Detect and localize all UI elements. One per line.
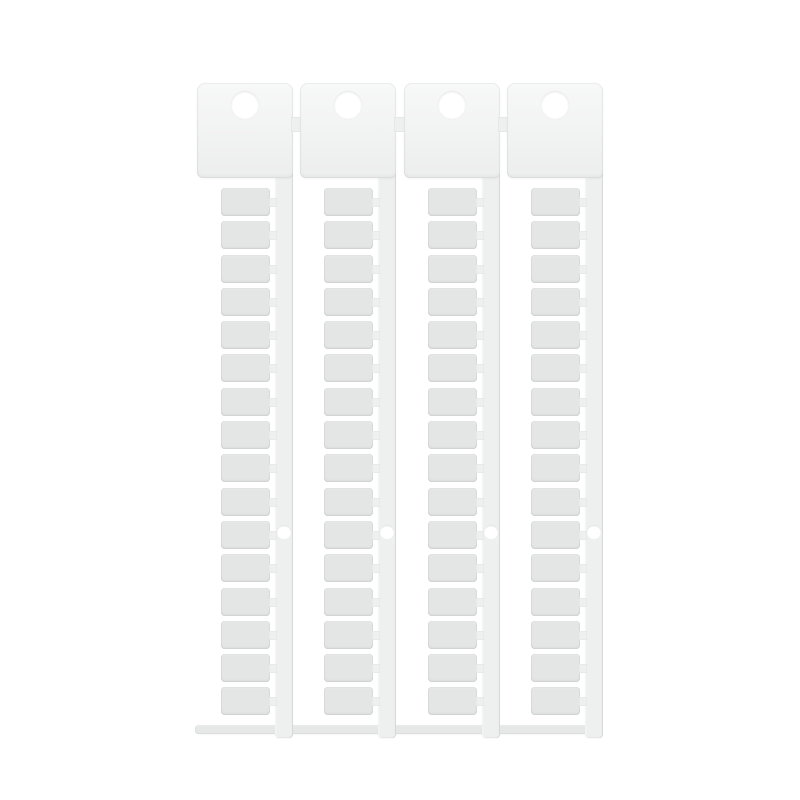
blank-marker-tag — [428, 687, 477, 715]
tag-connector-nub — [372, 697, 380, 706]
blank-marker-tag — [221, 621, 270, 649]
tag-connector-nub — [579, 531, 587, 540]
tag-row — [324, 288, 380, 316]
spine-hole — [277, 525, 291, 539]
tag-row — [531, 255, 587, 283]
tag-connector-nub — [476, 531, 484, 540]
tag-connector-nub — [269, 664, 277, 673]
marker-strip-2 — [300, 83, 396, 743]
tag-row — [221, 255, 277, 283]
blank-marker-tag — [428, 288, 477, 316]
blank-marker-tag — [531, 321, 580, 349]
tag-column — [221, 188, 277, 715]
tag-connector-nub — [372, 664, 380, 673]
tag-row — [428, 388, 484, 416]
tag-connector-nub — [372, 431, 380, 440]
tag-connector-nub — [579, 664, 587, 673]
tag-row — [221, 221, 277, 249]
tag-row — [428, 488, 484, 516]
tag-row — [324, 554, 380, 582]
strip-header-tab — [507, 83, 603, 178]
blank-marker-tag — [324, 654, 373, 682]
tag-connector-nub — [476, 631, 484, 640]
tag-connector-nub — [476, 564, 484, 573]
tag-connector-nub — [372, 398, 380, 407]
blank-marker-tag — [428, 454, 477, 482]
tag-row — [428, 354, 484, 382]
blank-marker-tag — [221, 654, 270, 682]
tag-connector-nub — [372, 364, 380, 373]
tag-row — [531, 221, 587, 249]
blank-marker-tag — [324, 255, 373, 283]
tag-row — [531, 388, 587, 416]
blank-marker-tag — [531, 454, 580, 482]
tag-connector-nub — [372, 231, 380, 240]
tag-row — [324, 255, 380, 283]
tag-connector-nub — [269, 331, 277, 340]
blank-marker-tag — [428, 588, 477, 616]
tag-connector-nub — [269, 298, 277, 307]
tag-row — [221, 188, 277, 216]
tag-row — [221, 654, 277, 682]
hanging-hole — [231, 91, 259, 119]
blank-marker-tag — [531, 288, 580, 316]
tag-row — [221, 521, 277, 549]
tag-connector-nub — [269, 265, 277, 274]
tag-connector-nub — [579, 598, 587, 607]
tag-connector-nub — [476, 398, 484, 407]
spine-hole — [380, 525, 394, 539]
tag-row — [531, 654, 587, 682]
blank-marker-tag — [221, 588, 270, 616]
blank-marker-tag — [531, 421, 580, 449]
blank-marker-tag — [531, 388, 580, 416]
blank-marker-tag — [324, 687, 373, 715]
tag-row — [531, 288, 587, 316]
tag-connector-nub — [476, 464, 484, 473]
tag-connector-nub — [372, 598, 380, 607]
tag-row — [428, 687, 484, 715]
carrier-spine — [585, 171, 603, 738]
blank-marker-tag — [428, 421, 477, 449]
blank-marker-tag — [324, 388, 373, 416]
blank-marker-tag — [531, 621, 580, 649]
blank-marker-tag — [324, 621, 373, 649]
tag-row — [531, 554, 587, 582]
blank-marker-tag — [531, 255, 580, 283]
tag-row — [221, 488, 277, 516]
blank-marker-tag — [428, 221, 477, 249]
blank-marker-tag — [324, 221, 373, 249]
blank-marker-tag — [531, 687, 580, 715]
blank-marker-tag — [221, 454, 270, 482]
tag-row — [428, 654, 484, 682]
tag-connector-nub — [476, 697, 484, 706]
blank-marker-tag — [221, 554, 270, 582]
tag-row — [324, 388, 380, 416]
tag-row — [531, 521, 587, 549]
blank-marker-tag — [428, 388, 477, 416]
tag-connector-nub — [269, 598, 277, 607]
blank-marker-tag — [531, 654, 580, 682]
tag-row — [428, 288, 484, 316]
tag-connector-nub — [372, 631, 380, 640]
blank-marker-tag — [221, 321, 270, 349]
tag-row — [221, 321, 277, 349]
tag-connector-nub — [579, 564, 587, 573]
tag-connector-nub — [476, 298, 484, 307]
tag-connector-nub — [269, 364, 277, 373]
blank-marker-tag — [324, 521, 373, 549]
tag-connector-nub — [476, 364, 484, 373]
blank-marker-tag — [531, 521, 580, 549]
spine-hole — [587, 525, 601, 539]
blank-marker-tag — [324, 188, 373, 216]
blank-marker-tag — [324, 588, 373, 616]
tag-row — [428, 221, 484, 249]
blank-marker-tag — [428, 488, 477, 516]
tag-row — [324, 521, 380, 549]
blank-marker-tag — [428, 554, 477, 582]
tag-connector-nub — [579, 265, 587, 274]
carrier-spine — [378, 171, 396, 738]
tag-row — [221, 621, 277, 649]
marker-card-sheet — [0, 0, 800, 800]
tag-connector-nub — [372, 531, 380, 540]
blank-marker-tag — [428, 188, 477, 216]
tag-column — [531, 188, 587, 715]
tag-connector-nub — [476, 431, 484, 440]
tag-row — [531, 621, 587, 649]
blank-marker-tag — [221, 255, 270, 283]
tag-connector-nub — [579, 431, 587, 440]
blank-marker-tag — [324, 321, 373, 349]
tag-row — [428, 188, 484, 216]
tag-connector-nub — [269, 431, 277, 440]
blank-marker-tag — [531, 588, 580, 616]
tag-row — [324, 488, 380, 516]
tag-row — [221, 588, 277, 616]
blank-marker-tag — [324, 288, 373, 316]
tag-row — [324, 654, 380, 682]
tag-row — [531, 687, 587, 715]
blank-marker-tag — [531, 221, 580, 249]
tag-connector-nub — [579, 198, 587, 207]
blank-marker-tag — [221, 221, 270, 249]
tag-row — [221, 687, 277, 715]
blank-marker-tag — [324, 421, 373, 449]
strip-header-tab — [404, 83, 500, 178]
blank-marker-tag — [531, 188, 580, 216]
blank-marker-tag — [221, 354, 270, 382]
tag-connector-nub — [269, 697, 277, 706]
tag-row — [531, 488, 587, 516]
blank-marker-tag — [428, 354, 477, 382]
tag-row — [428, 454, 484, 482]
tag-row — [324, 221, 380, 249]
tag-connector-nub — [269, 498, 277, 507]
blank-marker-tag — [531, 488, 580, 516]
tag-row — [531, 588, 587, 616]
tag-connector-nub — [269, 398, 277, 407]
blank-marker-tag — [428, 255, 477, 283]
tag-connector-nub — [579, 498, 587, 507]
tag-row — [221, 288, 277, 316]
tag-connector-nub — [372, 464, 380, 473]
tag-connector-nub — [579, 364, 587, 373]
tag-row — [324, 188, 380, 216]
tag-connector-nub — [476, 231, 484, 240]
marker-strip-4 — [507, 83, 603, 743]
marker-strip-3 — [404, 83, 500, 743]
tag-row — [428, 521, 484, 549]
hanging-hole — [334, 91, 362, 119]
blank-marker-tag — [221, 521, 270, 549]
tag-row — [221, 454, 277, 482]
blank-marker-tag — [221, 488, 270, 516]
tag-connector-nub — [579, 231, 587, 240]
blank-marker-tag — [428, 521, 477, 549]
tag-row — [324, 354, 380, 382]
strip-header-tab — [197, 83, 293, 178]
tag-connector-nub — [476, 664, 484, 673]
tag-row — [221, 354, 277, 382]
hanging-hole — [541, 91, 569, 119]
tag-row — [324, 588, 380, 616]
tag-connector-nub — [579, 464, 587, 473]
tag-connector-nub — [372, 498, 380, 507]
blank-marker-tag — [531, 354, 580, 382]
blank-marker-tag — [324, 354, 373, 382]
tag-column — [428, 188, 484, 715]
strip-header-tab — [300, 83, 396, 178]
tag-connector-nub — [269, 198, 277, 207]
tag-connector-nub — [579, 398, 587, 407]
tag-row — [531, 188, 587, 216]
tag-connector-nub — [579, 331, 587, 340]
tag-row — [531, 421, 587, 449]
blank-marker-tag — [324, 554, 373, 582]
tag-connector-nub — [269, 564, 277, 573]
tag-row — [221, 421, 277, 449]
tag-row — [531, 454, 587, 482]
tag-row — [221, 388, 277, 416]
blank-marker-tag — [221, 288, 270, 316]
blank-marker-tag — [221, 421, 270, 449]
blank-marker-tag — [324, 488, 373, 516]
tag-row — [428, 554, 484, 582]
tag-connector-nub — [372, 331, 380, 340]
tag-connector-nub — [269, 231, 277, 240]
tag-connector-nub — [476, 265, 484, 274]
tag-connector-nub — [476, 498, 484, 507]
tag-row — [324, 621, 380, 649]
tag-connector-nub — [269, 631, 277, 640]
carrier-spine — [482, 171, 500, 738]
tag-row — [221, 554, 277, 582]
hanging-hole — [438, 91, 466, 119]
blank-marker-tag — [221, 687, 270, 715]
tag-connector-nub — [476, 198, 484, 207]
tag-connector-nub — [372, 198, 380, 207]
tag-row — [324, 454, 380, 482]
blank-marker-tag — [221, 188, 270, 216]
tag-row — [428, 588, 484, 616]
tag-row — [324, 321, 380, 349]
tag-connector-nub — [269, 464, 277, 473]
tag-row — [428, 255, 484, 283]
blank-marker-tag — [221, 388, 270, 416]
tag-row — [428, 421, 484, 449]
carrier-spine — [275, 171, 293, 738]
tag-connector-nub — [579, 697, 587, 706]
tag-connector-nub — [372, 298, 380, 307]
tag-connector-nub — [476, 598, 484, 607]
tag-row — [531, 321, 587, 349]
tag-connector-nub — [269, 531, 277, 540]
tag-connector-nub — [476, 331, 484, 340]
tag-row — [324, 421, 380, 449]
tag-connector-nub — [579, 631, 587, 640]
blank-marker-tag — [531, 554, 580, 582]
blank-marker-tag — [428, 321, 477, 349]
spine-hole — [484, 525, 498, 539]
blank-marker-tag — [428, 654, 477, 682]
tag-row — [428, 621, 484, 649]
tag-row — [531, 354, 587, 382]
tag-row — [428, 321, 484, 349]
marker-strip-1 — [197, 83, 293, 743]
tag-connector-nub — [372, 564, 380, 573]
blank-marker-tag — [428, 621, 477, 649]
blank-marker-tag — [324, 454, 373, 482]
tag-connector-nub — [372, 265, 380, 274]
tag-row — [324, 687, 380, 715]
tag-connector-nub — [579, 298, 587, 307]
tag-column — [324, 188, 380, 715]
